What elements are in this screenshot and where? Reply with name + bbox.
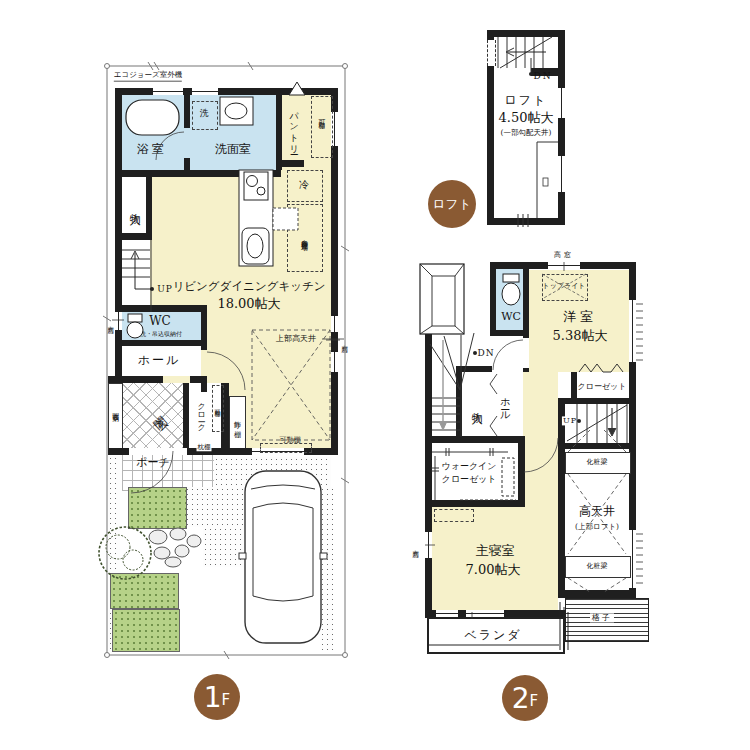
wc-note-label: 手洗・吊込収納付 (134, 331, 182, 338)
wall (122, 340, 201, 346)
skylight-label: トップライト (543, 282, 586, 290)
door-opening (184, 128, 190, 158)
western-room-size-label: 5.38帖大 (553, 329, 608, 344)
wall (558, 398, 636, 404)
window (558, 156, 565, 192)
upper-high-ceiling-label: 上部高天井 (276, 334, 316, 343)
wall (115, 233, 152, 240)
fridge-label: 冷 (299, 179, 309, 191)
master-bedroom (432, 507, 558, 610)
storage-label-2f: 物入 (470, 403, 483, 405)
veranda-label: ベランダ (464, 629, 521, 643)
window-dashed (487, 40, 496, 66)
wall (490, 262, 496, 336)
loft-badge: ロフト (428, 180, 476, 228)
floorplan-canvas: エコジョーズ室外機 浴室 洗 洗面室 パントリー 可動棚 冷 食器棚置場 物入 … (0, 0, 750, 750)
up-label-2f: UP (562, 416, 578, 425)
wall (558, 398, 565, 598)
gravel (185, 487, 247, 527)
lattice-label: 格子 (590, 613, 614, 622)
up-label-1f: UP (157, 284, 173, 294)
wc-label-1f: WC (149, 315, 171, 329)
wic-label-line1: ウォークイン (441, 461, 496, 471)
western-room-label: 洋室 (563, 310, 597, 325)
stepping-stones (149, 528, 201, 567)
wall (115, 170, 281, 177)
dn-label-2f: DN (477, 348, 494, 358)
door-opening (523, 338, 529, 368)
washroom-label: 洗面室 (215, 143, 251, 157)
entrance-room (122, 383, 183, 448)
wall (487, 218, 565, 225)
storage-label-1f: 物入 (128, 204, 141, 206)
tree (99, 527, 151, 579)
window-high (115, 310, 122, 330)
hall-label-1f: ホール (138, 354, 181, 368)
wall (425, 328, 432, 618)
grass-patch (110, 573, 179, 609)
master-label: 主寝室 (476, 544, 515, 559)
hall-label-2f: ホール (499, 391, 511, 417)
movable-shelf-label: 可動棚 (280, 436, 301, 444)
stairs-room-1f (122, 240, 150, 308)
floor2-badge-suffix: F (530, 692, 539, 710)
beam-label: 化粧梁 (587, 458, 608, 466)
gravel (320, 487, 333, 650)
window-high (548, 262, 580, 269)
wall (108, 376, 163, 383)
wall (558, 590, 636, 598)
washer-label: 洗 (200, 108, 209, 118)
wall (146, 177, 152, 240)
entrance-storage (108, 383, 123, 450)
wall (487, 30, 565, 37)
wall (276, 160, 304, 167)
entrance-storage-label: 玄関収納 (111, 407, 118, 411)
wic-label-line2: クローゼット (441, 474, 496, 484)
wall (571, 372, 577, 398)
window-high (331, 316, 338, 332)
high-window-label: 高窓 (340, 339, 347, 341)
window-high (425, 532, 432, 558)
bath-label: 浴室 (137, 143, 167, 157)
high-ceiling-label: 高天井 (578, 505, 616, 519)
master-size-label: 7.00帖大 (466, 563, 521, 578)
grass-patch (128, 487, 187, 529)
wall (115, 305, 207, 312)
pantry-label: パントリー (289, 105, 299, 151)
wall (276, 88, 282, 170)
cloak-shelf-label: 可動棚 (214, 405, 221, 408)
floor2-badge-number: 2 (512, 682, 530, 715)
grass-patch (112, 609, 180, 652)
corridor (523, 372, 558, 507)
window (629, 300, 636, 362)
floor1-badge-number: 1 (204, 681, 222, 714)
closet-label: クローゼット (578, 382, 627, 391)
wall (183, 383, 189, 448)
ldk-size-label: 18.00帖大 (217, 297, 280, 312)
loft-note-label: (一部勾配天井) (501, 129, 552, 138)
wc-label-2f: WC (501, 311, 521, 324)
bedroom-shelf (434, 509, 474, 522)
wall (115, 88, 338, 95)
pillow-shelf-label: 枕棚 (197, 444, 212, 451)
gravel (203, 527, 247, 567)
window-combs (636, 304, 643, 583)
high-window-label: 高窓 (554, 251, 574, 259)
window-high (331, 352, 338, 372)
high-ceiling-note-label: (上部ロフト) (575, 523, 619, 532)
wall (456, 366, 462, 436)
wall (518, 436, 525, 507)
wall (425, 500, 525, 507)
dn-label-loft: DN (533, 71, 552, 81)
cloak-label: クローク (196, 397, 205, 428)
window (153, 88, 183, 95)
floor1-badge: 1F (194, 674, 240, 720)
wall (190, 376, 207, 383)
pantry-shelf-label: 可動棚 (317, 115, 324, 118)
loft-name-label: ロフト (505, 94, 548, 108)
high-window-label: 高窓 (106, 320, 113, 322)
floor1-badge-suffix: F (222, 691, 231, 709)
car (239, 471, 327, 643)
bath-room (122, 95, 184, 170)
floor2-badge: 2F (502, 675, 548, 721)
window (436, 610, 458, 617)
gravel (214, 457, 331, 487)
loft-size-label: 4.50帖大 (499, 111, 554, 126)
window (466, 610, 504, 617)
pantry-shelf (311, 96, 333, 158)
ldk-label: リビングダイニングキッチン (172, 280, 325, 293)
door-opening (129, 448, 187, 455)
window (558, 88, 565, 118)
wall (558, 443, 636, 449)
cupboard-label: 食器棚置場 (300, 235, 308, 240)
display-shelf-label: 飾り棚 (233, 416, 241, 427)
loft-badge-text: ロフト (433, 196, 471, 213)
wall (558, 30, 565, 225)
movable-shelf (260, 443, 312, 453)
cloak-shelf (212, 385, 224, 432)
high-window-label: 高窓 (411, 544, 418, 546)
beam-label: 化粧梁 (587, 562, 608, 570)
outdoor-unit-label: エコジョーズ室外機 (114, 71, 182, 82)
porch-label: ポーチ (136, 457, 170, 470)
window (192, 88, 218, 95)
wall (425, 436, 525, 443)
